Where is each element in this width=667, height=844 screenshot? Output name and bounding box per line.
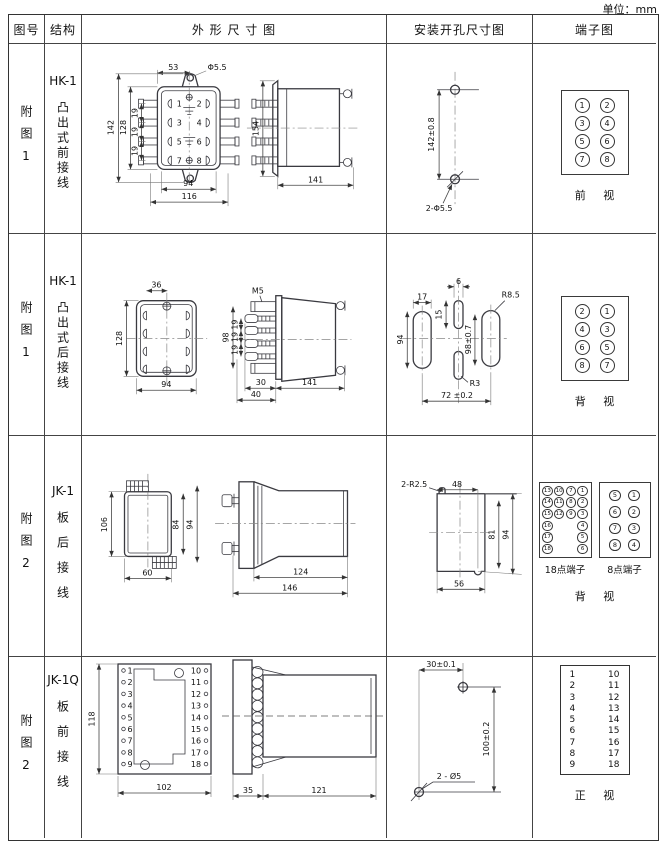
terminal-pin: 7 xyxy=(575,152,590,167)
pin-number: 8 xyxy=(196,156,201,165)
model-label: HK-1 xyxy=(49,274,77,288)
row4-structure-cell: JK-1Q 板前接线 xyxy=(45,657,82,838)
dim-label: 56 xyxy=(453,579,463,588)
header-structure: 结构 xyxy=(45,15,82,44)
row1-figure-cell: 附图1 xyxy=(9,44,45,234)
row2-mounting-cell: 6 17 15 94 98±0.7 R8.5 R3 72 ±0.2 xyxy=(387,234,533,436)
terminal-pin: 17 xyxy=(608,749,619,759)
dim-label: 30 xyxy=(255,378,265,387)
figure-label: 附图1 xyxy=(18,301,35,369)
dim-label: 60 xyxy=(142,568,152,577)
dim-label: 72 ±0.2 xyxy=(441,391,473,400)
header-terminal-label: 端子图 xyxy=(575,21,614,38)
dim-label: 142±0.8 xyxy=(427,117,436,151)
terminal-pin: 15 xyxy=(608,726,619,736)
structure-desc: 板前接线 xyxy=(55,700,72,800)
terminal-pin: 2 xyxy=(628,506,640,518)
dim-label: Φ5.5 xyxy=(207,63,226,72)
header-structure-label: 结构 xyxy=(50,21,76,38)
model-label: JK-1 xyxy=(52,484,74,498)
terminal-pin: 15 xyxy=(542,509,553,520)
terminal-pin: 7 xyxy=(570,738,576,748)
terminal-pin: 4 xyxy=(577,521,588,532)
header-terminal: 端子图 xyxy=(533,15,656,44)
terminal-pin: 9 xyxy=(570,760,576,770)
dim-label: 2 - Ø5 xyxy=(436,771,460,781)
pin-number: 4 xyxy=(127,702,132,711)
structure-desc: 凸出式后接线 xyxy=(55,301,72,391)
dim-label: 128 xyxy=(115,331,124,346)
dim-label: 19 xyxy=(130,127,139,137)
dim-label: 94 xyxy=(501,529,510,539)
dim-label: 116 xyxy=(181,192,196,201)
terminal-diagram-8pt: 51627384 xyxy=(599,482,651,558)
dim-label: 102 xyxy=(156,783,171,792)
pin-number: 6 xyxy=(196,137,201,146)
figure-label: 附图2 xyxy=(18,714,35,782)
terminal-pin: 7 xyxy=(609,523,621,535)
row1-structure-cell: HK-1 凸出式前接线 xyxy=(45,44,82,234)
mounting-holes-hk1-front: 142±0.8 2-Φ5.5 xyxy=(387,44,533,233)
dim-label: 6 xyxy=(455,277,460,286)
terminal-caption: 背 视 xyxy=(568,588,622,604)
terminal-pin: 6 xyxy=(570,726,576,736)
row3-mounting-cell: 2-R2.5 48 81 94 56 xyxy=(387,436,533,657)
outline-drawing-hk1-front-wiring: 1 2 3 4 5 6 7 8 53 Φ5.5 xyxy=(82,44,387,233)
terminal-diagram-8pt: 12345678 xyxy=(561,90,629,175)
terminal-caption: 前 视 xyxy=(568,187,622,203)
header-figure: 图号 xyxy=(9,15,45,44)
terminal-pin: 4 xyxy=(570,704,576,714)
dim-label: 141 xyxy=(302,378,317,387)
dim-label: 81 xyxy=(487,529,496,539)
row4-figure-cell: 附图2 xyxy=(9,657,45,838)
dim-label: 141 xyxy=(307,175,322,184)
terminal-pin: 1 xyxy=(575,98,590,113)
terminal-pin: 5 xyxy=(570,715,576,725)
outline-drawing-jk1: 106 84 94 60 124 146 xyxy=(82,436,387,656)
dim-label: 94 xyxy=(183,179,193,188)
dim-label: 94 xyxy=(161,380,171,389)
terminal-pin: 6 xyxy=(609,506,621,518)
structure-desc: 凸出式前接线 xyxy=(55,101,72,191)
terminal-diagram-8pt: 21436587 xyxy=(561,296,629,381)
terminal-pin: 10 xyxy=(608,670,619,680)
pin-number: 12 xyxy=(190,690,200,699)
dim-label: 121 xyxy=(311,786,326,795)
terminal-diagram-18pt: 131071141182151293164175186 xyxy=(539,482,592,558)
terminal-pin: 7 xyxy=(566,486,577,497)
dim-label: 146 xyxy=(282,583,297,592)
row3-structure-cell: JK-1 板后接线 xyxy=(45,436,82,657)
terminal-pin: 16 xyxy=(608,738,619,748)
terminal-pin: 17 xyxy=(542,532,553,543)
terminal-pin: 1 xyxy=(600,304,615,319)
dim-label: 154 xyxy=(251,121,260,136)
dim-label: 15 xyxy=(434,310,443,320)
terminal-pin: 12 xyxy=(554,509,565,520)
model-label: JK-1Q xyxy=(47,673,79,687)
dim-label: 2-R2.5 xyxy=(401,480,427,489)
pin-number: 8 xyxy=(127,748,132,757)
terminal-pin: 13 xyxy=(608,704,619,714)
dim-label: 17 xyxy=(417,293,427,302)
terminal-pin: 3 xyxy=(577,509,588,520)
terminal-pin: 2 xyxy=(575,304,590,319)
pin-number: 1 xyxy=(176,100,181,109)
terminal-pin: 8 xyxy=(600,152,615,167)
row2-figure-cell: 附图1 xyxy=(9,234,45,436)
outline-drawing-jk1q: 1 2 3 4 5 6 7 8 9 10 11 12 13 14 15 16 1… xyxy=(82,657,387,838)
pin-number: 7 xyxy=(176,156,181,165)
terminal-pin: 14 xyxy=(542,497,553,508)
pin-number: 3 xyxy=(127,690,132,699)
spec-table: 图号 结构 外 形 尺 寸 图 安装开孔尺寸图 端子图 附图1 HK-1 凸出式… xyxy=(8,14,659,841)
row1-outline-cell: 1 2 3 4 5 6 7 8 53 Φ5.5 xyxy=(82,44,387,234)
model-label: HK-1 xyxy=(49,74,77,88)
terminal-pin: 6 xyxy=(575,340,590,355)
dim-label: 35 xyxy=(242,786,252,795)
row3-terminal-cell: 131071141182151293164175186 18点端子 516273… xyxy=(533,436,656,657)
terminal-caption: 正 视 xyxy=(568,787,622,803)
terminal-pin: 7 xyxy=(600,358,615,373)
pin-number: 2 xyxy=(196,100,201,109)
row4-terminal-cell: 123456789 101112131415161718 正 视 xyxy=(533,657,656,838)
outline-drawing-hk1-rear-wiring: 36 128 94 M5 98 xyxy=(82,234,387,435)
terminal-diagram-18pt-front: 123456789 101112131415161718 xyxy=(560,665,630,775)
dim-label: 53 xyxy=(168,63,178,72)
terminal-pin: 10 xyxy=(554,486,565,497)
pin-number: 6 xyxy=(127,725,132,734)
terminal-pin: 9 xyxy=(566,509,577,520)
dim-label: 98 xyxy=(221,332,230,342)
terminal-pin: 3 xyxy=(628,523,640,535)
terminal-pin: 2 xyxy=(577,497,588,508)
dim-label: 106 xyxy=(100,517,109,532)
dim-label: 19 xyxy=(230,345,239,355)
dim-label: 94 xyxy=(185,520,194,530)
dim-label: 40 xyxy=(250,390,260,399)
terminal-pin: 6 xyxy=(600,134,615,149)
pin-number: 2 xyxy=(127,678,132,687)
front-pins: 1 2 3 4 5 6 7 8 9 10 11 12 13 14 15 16 1… xyxy=(121,667,207,770)
terminal-pin: 18 xyxy=(542,544,553,555)
dim-label: 142 xyxy=(106,120,115,135)
terminal-pin: 5 xyxy=(609,490,621,502)
header-mounting: 安装开孔尺寸图 xyxy=(387,15,533,44)
dim-label: 84 xyxy=(171,520,180,530)
terminal-pin: 5 xyxy=(575,134,590,149)
terminal-pin: 8 xyxy=(570,749,576,759)
terminal-pin: 8 xyxy=(566,497,577,508)
dim-label: 30±0.1 xyxy=(426,660,456,669)
dim-label: R3 xyxy=(469,379,480,388)
structure-desc: 板后接线 xyxy=(55,511,72,611)
terminal-pin: 16 xyxy=(542,521,553,532)
terminal-pin: 1 xyxy=(570,670,576,680)
row2-terminal-cell: 21436587 背 视 xyxy=(533,234,656,436)
row4-outline-cell: 1 2 3 4 5 6 7 8 9 10 11 12 13 14 15 16 1… xyxy=(82,657,387,838)
terminal-pin: 3 xyxy=(570,693,576,703)
terminal-column-left: 123456789 xyxy=(570,670,576,770)
terminal-pin: 11 xyxy=(608,681,619,691)
terminal-pin: 18 xyxy=(608,760,619,770)
pin-number: 18 xyxy=(190,760,200,769)
mounting-holes-jk1q: 30±0.1 100±0.2 2 - Ø5 xyxy=(387,657,533,838)
pin-number: 3 xyxy=(176,119,181,128)
pin-number: 13 xyxy=(190,702,200,711)
dim-label: 19 xyxy=(130,146,139,156)
terminal-pin: 12 xyxy=(608,693,619,703)
terminal-pin: 11 xyxy=(554,497,565,508)
pin-number: 1 xyxy=(127,667,132,676)
terminal-pin: 4 xyxy=(628,539,640,551)
dim-label: 36 xyxy=(151,281,161,290)
pin-number: 9 xyxy=(127,760,132,769)
terminal-pin: 1 xyxy=(628,490,640,502)
terminal-pin: 8 xyxy=(609,539,621,551)
dim-label: R8.5 xyxy=(501,291,519,300)
pin-number: 10 xyxy=(190,667,200,676)
terminal-caption: 背 视 xyxy=(568,393,622,409)
dim-label: 48 xyxy=(451,480,461,489)
terminal-label: 8点端子 xyxy=(607,562,642,576)
dim-label: 98±0.7 xyxy=(463,325,472,354)
pin-number: 4 xyxy=(196,119,201,128)
pin-number: 16 xyxy=(190,737,200,746)
terminal-pin: 4 xyxy=(600,116,615,131)
mounting-holes-hk1-rear: 6 17 15 94 98±0.7 R8.5 R3 72 ±0.2 xyxy=(387,234,533,435)
terminal-label: 18点端子 xyxy=(545,562,586,576)
pin-number: 5 xyxy=(127,713,132,722)
pin-number: 7 xyxy=(127,737,132,746)
header-mounting-label: 安装开孔尺寸图 xyxy=(414,21,505,38)
pin-number: 15 xyxy=(190,725,200,734)
figure-label: 附图2 xyxy=(18,512,35,580)
row3-figure-cell: 附图2 xyxy=(9,436,45,657)
dim-label: 2-Φ5.5 xyxy=(425,204,452,213)
row2-structure-cell: HK-1 凸出式后接线 xyxy=(45,234,82,436)
terminal-pin: 2 xyxy=(570,681,576,691)
terminal-pin: 3 xyxy=(575,116,590,131)
dim-label: M5 xyxy=(251,287,263,296)
dim-label: 94 xyxy=(395,334,404,344)
terminal-pin: 1 xyxy=(577,486,588,497)
terminal-pin: 6 xyxy=(577,544,588,555)
pin-number: 5 xyxy=(176,137,181,146)
row4-mounting-cell: 30±0.1 100±0.2 2 - Ø5 xyxy=(387,657,533,838)
pin-number: 11 xyxy=(190,678,200,687)
dim-label: 19 xyxy=(230,319,239,329)
row3-outline-cell: 106 84 94 60 124 146 xyxy=(82,436,387,657)
mounting-holes-jk1: 2-R2.5 48 81 94 56 xyxy=(387,436,533,656)
dim-label: 100±0.2 xyxy=(482,722,491,757)
header-outline: 外 形 尺 寸 图 xyxy=(82,15,387,44)
row2-outline-cell: 36 128 94 M5 98 xyxy=(82,234,387,436)
header-outline-label: 外 形 尺 寸 图 xyxy=(192,21,276,38)
dim-label: 128 xyxy=(119,120,128,135)
terminal-pin: 4 xyxy=(575,322,590,337)
dim-label: 118 xyxy=(87,711,96,726)
figure-label: 附图1 xyxy=(18,105,35,173)
pin-number: 17 xyxy=(190,748,200,757)
row1-mounting-cell: 142±0.8 2-Φ5.5 xyxy=(387,44,533,234)
terminal-pin: 3 xyxy=(600,322,615,337)
terminal-column-right: 101112131415161718 xyxy=(608,670,619,770)
pin-number: 14 xyxy=(190,713,200,722)
terminal-pin: 2 xyxy=(600,98,615,113)
dim-label: 19 xyxy=(130,108,139,118)
terminal-pin: 8 xyxy=(575,358,590,373)
dim-label: 19 xyxy=(230,332,239,342)
dim-label: 124 xyxy=(293,567,308,576)
terminal-pin: 13 xyxy=(542,486,553,497)
terminal-pin: 14 xyxy=(608,715,619,725)
row1-terminal-cell: 12345678 前 视 xyxy=(533,44,656,234)
terminal-pin: 5 xyxy=(600,340,615,355)
terminal-pin: 5 xyxy=(577,532,588,543)
header-figure-label: 图号 xyxy=(13,21,39,38)
